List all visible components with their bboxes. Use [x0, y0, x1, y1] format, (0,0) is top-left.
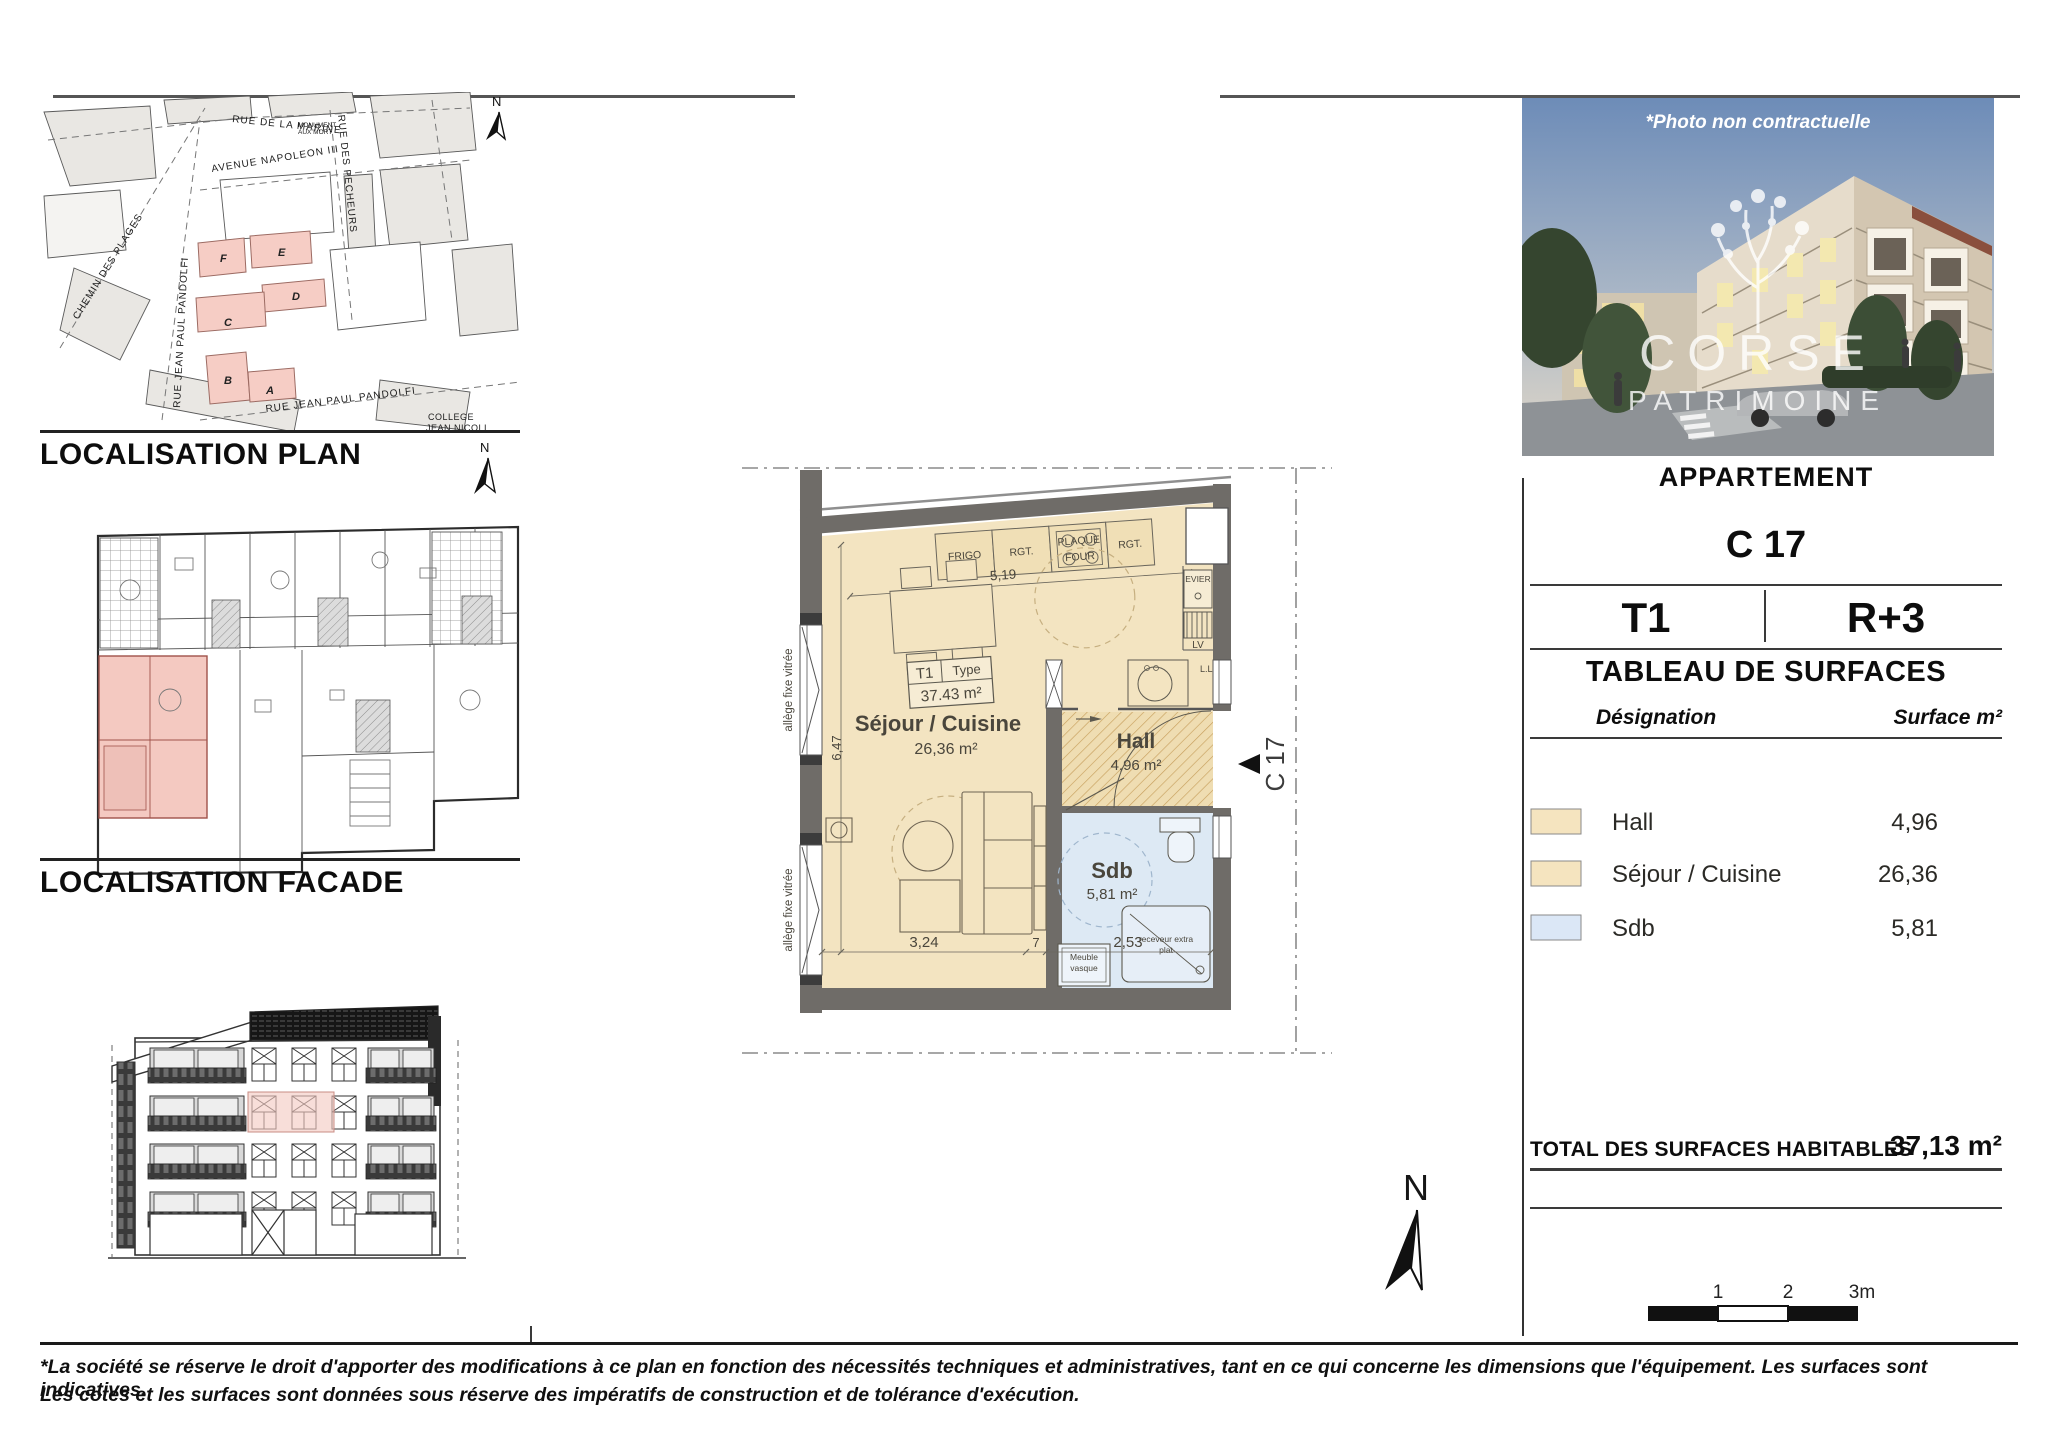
dim-top-value: 5,19 — [989, 567, 1016, 584]
overview-floor-plan — [60, 495, 530, 875]
total-value: 37,13 m² — [1850, 1130, 2002, 1162]
plan-north-arrow-icon: N — [468, 436, 518, 498]
dim-b1: 3,24 — [909, 934, 938, 951]
scale-tick-3: 3m — [1849, 1282, 1875, 1303]
street-label-pecheurs: RUE DES PECHEURS — [335, 114, 358, 233]
row-value: 26,36 — [1810, 861, 1938, 889]
north-compass: N — [1375, 1160, 1465, 1300]
dim-b3: 2,53 — [1113, 934, 1142, 951]
panel-rule-2 — [1530, 648, 2002, 650]
surface-row-sejour: Séjour / Cuisine 26,36 — [1530, 860, 2002, 894]
apartment-plan: FRIGO RGT. PLAQUE FOUR RGT. 5,19 — [725, 410, 1340, 1110]
scale-tick-1: 1 — [1713, 1282, 1724, 1303]
footer-line-2: Les cotes et les surfaces sont données s… — [40, 1384, 2018, 1407]
lv-label: LV — [1192, 640, 1204, 651]
street-label-napoleon: AVENUE NAPOLEON III — [211, 144, 340, 175]
allege-label-2: allège fixe vitrée — [783, 868, 795, 951]
brand-bottom: PATRIMOINE — [1628, 385, 1888, 416]
meuble-label-2: vasque — [1070, 963, 1098, 973]
svg-text:N: N — [480, 440, 489, 455]
receveur-label-1: receveur extra — [1139, 934, 1194, 944]
building-letter-a: A — [265, 385, 274, 397]
building-letter-b: B — [224, 375, 232, 387]
evier-label: EVIER — [1185, 574, 1211, 584]
photo-caption: *Photo non contractuelle — [1646, 112, 1871, 133]
scale-tick-2: 2 — [1783, 1282, 1794, 1303]
dim-left-value: 6,47 — [829, 735, 844, 760]
building-letter-e: E — [278, 247, 286, 259]
scale-seg-3 — [1788, 1306, 1858, 1321]
building-letter-d: D — [292, 291, 300, 303]
appartement-heading: APPARTEMENT — [1530, 462, 2002, 493]
panel-rule-4 — [1530, 1168, 2002, 1171]
ll-label: L.L — [1200, 664, 1213, 674]
dim-b2: 7 — [1032, 935, 1039, 950]
facade-floor-r4 — [148, 1048, 436, 1083]
sdb-swatch — [1530, 914, 1582, 941]
sejour-area: 26,36 m² — [914, 741, 978, 758]
hall-area: 4,96 m² — [1111, 757, 1162, 774]
surface-row-hall: Hall 4,96 — [1530, 808, 2002, 842]
entrance-arrow-icon — [1238, 754, 1260, 774]
sejour-label: Séjour / Cuisine — [855, 711, 1021, 736]
panel-rule-5 — [1530, 1207, 2002, 1209]
brand-top: CORSE — [1639, 325, 1877, 381]
map-north-arrow-icon: N — [486, 94, 505, 140]
vanity-unit: Meuble vasque — [1058, 944, 1110, 986]
svg-text:N: N — [492, 94, 501, 109]
plaque-label-2: FOUR — [1065, 550, 1096, 564]
allege-label-1: allège fixe vitrée — [783, 648, 795, 731]
plan-sheet: F E D C B A RUE DE LA MARINE AVENUE NAPO… — [0, 0, 2048, 1448]
facade-divider — [40, 858, 520, 861]
sejour-swatch — [1530, 860, 1582, 887]
sink-column: EVIER LV — [1183, 566, 1213, 651]
panel-rule-1 — [1530, 584, 2002, 586]
type-box: T1 Type 37.43 m² — [907, 657, 994, 709]
panel-left-border — [1522, 478, 1524, 1336]
floor-value: R+3 — [1770, 594, 2002, 642]
scale-seg-1 — [1648, 1306, 1718, 1321]
surface-row-sdb: Sdb 5,81 — [1530, 914, 2002, 948]
sdb-area: 5,81 m² — [1087, 886, 1138, 903]
row-value: 5,81 — [1810, 915, 1938, 943]
sdb-label: Sdb — [1091, 858, 1133, 883]
college-label-1: COLLEGE — [428, 412, 474, 422]
north-arrow-icon — [1385, 1210, 1422, 1290]
map-divider — [40, 430, 520, 433]
row-label: Séjour / Cuisine — [1612, 861, 1781, 889]
technical-shaft — [1186, 508, 1228, 564]
col-surface: Surface m² — [1848, 706, 2002, 730]
row-label: Hall — [1612, 809, 1653, 837]
rgt-label-1: RGT. — [1009, 545, 1034, 559]
entrance-unit-label: C 17 — [1260, 737, 1290, 792]
facade-ground-floor — [150, 1210, 432, 1255]
monument-label-2: AUX MORT — [298, 129, 332, 136]
compass-label: N — [1403, 1167, 1429, 1208]
col-designation: Désignation — [1596, 706, 1716, 730]
type-box-t1: T1 — [915, 665, 934, 683]
building-letter-c: C — [224, 317, 233, 329]
building-letter-f: F — [220, 253, 227, 265]
overview-highlight-unit — [99, 656, 207, 818]
row-label: Sdb — [1612, 915, 1655, 943]
panel-rule-3 — [1530, 737, 2002, 739]
panel-type-divider — [1764, 590, 1766, 642]
hall-swatch — [1530, 808, 1582, 835]
meuble-label-1: Meuble — [1070, 952, 1098, 962]
facade-highlight-unit — [248, 1092, 334, 1132]
scale-seg-2 — [1718, 1306, 1788, 1321]
facade-left-wing — [117, 1062, 135, 1248]
type-box-word: Type — [952, 661, 981, 678]
facade-elevation — [88, 955, 478, 1285]
right-windows — [1213, 660, 1231, 858]
footer-rule — [40, 1342, 2018, 1345]
table-title: TABLEAU DE SURFACES — [1530, 656, 2002, 689]
rgt-label-2: RGT. — [1118, 538, 1143, 552]
street-map: F E D C B A RUE DE LA MARINE AVENUE NAPO… — [40, 92, 520, 442]
building-photo: CORSE PATRIMOINE *Photo non contractuell… — [1522, 98, 1994, 456]
monument-label-1: MONUMENT — [298, 122, 336, 129]
type-value: T1 — [1530, 594, 1762, 642]
localisation-plan-heading: LOCALISATION PLAN — [40, 438, 361, 472]
facade-floor-r2 — [148, 1144, 436, 1179]
scale-bar: 1 2 3m — [1630, 1280, 1890, 1340]
receveur-label-2: plat — [1159, 945, 1173, 955]
localisation-facade-heading: LOCALISATION FACADE — [40, 866, 404, 900]
map-highlighted-buildings — [196, 231, 326, 404]
sejour-hall-door — [1046, 660, 1062, 708]
overview-loggia-left — [100, 538, 158, 648]
row-value: 4,96 — [1810, 809, 1938, 837]
unit-number: C 17 — [1530, 524, 2002, 567]
